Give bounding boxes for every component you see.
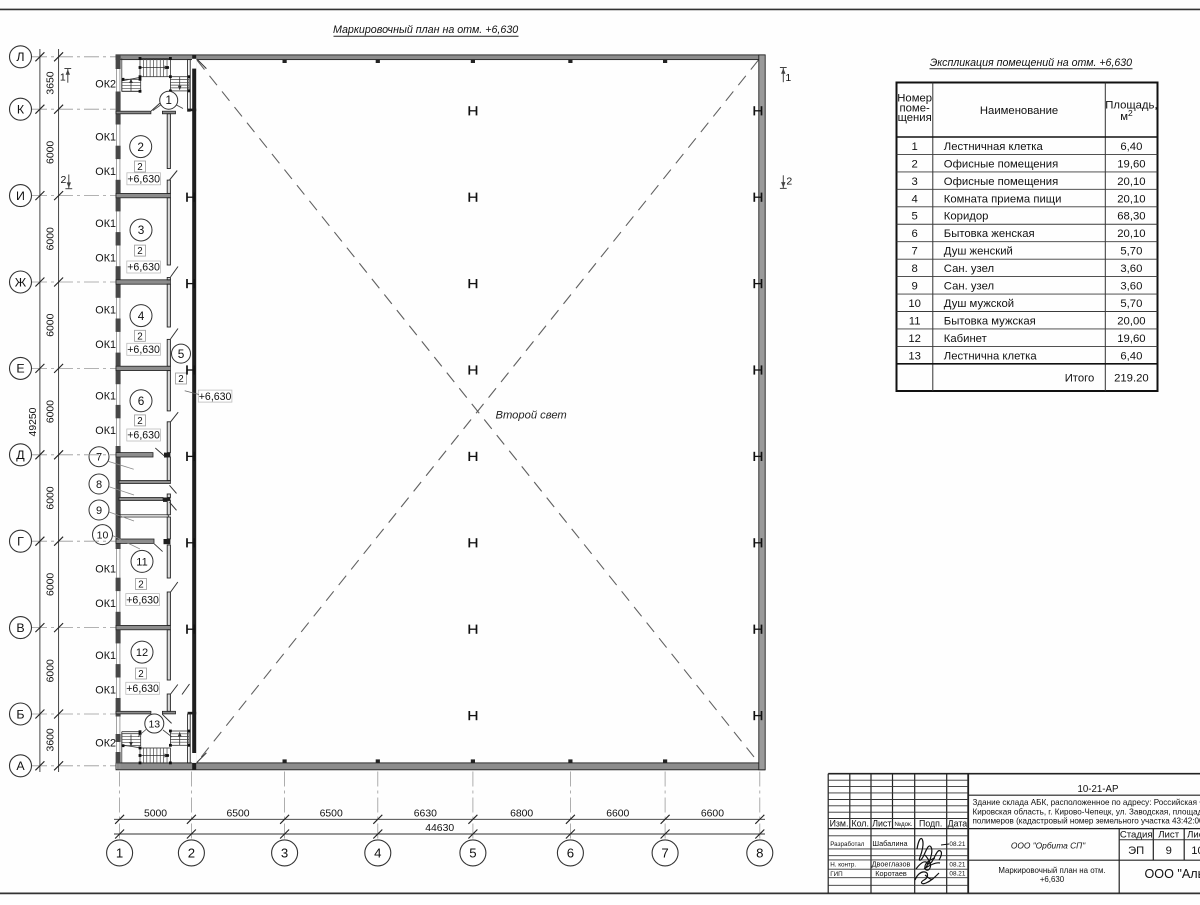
svg-text:3: 3 [281,846,288,861]
svg-text:3600: 3600 [45,728,56,751]
svg-text:2: 2 [138,580,143,591]
svg-text:7: 7 [912,246,918,258]
svg-text:08.21: 08.21 [949,871,965,878]
svg-text:Изм.: Изм. [830,818,849,828]
svg-text:Е: Е [16,362,24,376]
svg-text:+6,630: +6,630 [127,430,160,442]
svg-text:Душ женский: Душ женский [944,246,1013,258]
svg-text:6500: 6500 [320,808,343,819]
svg-text:Лист: Лист [872,818,891,828]
svg-text:6: 6 [567,846,574,861]
svg-text:+6,630: +6,630 [126,594,159,606]
svg-text:+6,630: +6,630 [127,174,160,186]
svg-text:5000: 5000 [144,808,167,819]
svg-text:ОК1: ОК1 [95,339,116,351]
svg-text:20,10: 20,10 [1117,193,1145,205]
svg-text:Кабинет: Кабинет [944,333,987,345]
svg-text:5: 5 [469,846,476,861]
svg-text:Экспликация помещений на отм.: Экспликация помещений на отм. +6,630 [930,57,1132,69]
svg-text:11: 11 [136,556,147,568]
svg-text:ОК2: ОК2 [95,78,116,90]
svg-text:08.21: 08.21 [949,841,965,848]
svg-text:6600: 6600 [701,808,724,819]
svg-text:Двоеглазов: Двоеглазов [872,860,911,869]
svg-text:08.21: 08.21 [949,861,965,868]
svg-text:ГИП: ГИП [830,871,843,878]
svg-text:12: 12 [908,333,921,345]
svg-text:44630: 44630 [425,823,454,834]
svg-text:+6,630: +6,630 [199,391,232,403]
svg-text:8: 8 [96,479,102,491]
svg-text:2: 2 [137,140,144,154]
svg-text:2: 2 [912,158,918,170]
svg-text:6500: 6500 [226,808,249,819]
svg-text:5,70: 5,70 [1120,246,1142,258]
svg-text:2: 2 [137,246,142,257]
svg-text:Д: Д [16,448,25,462]
svg-text:68,30: 68,30 [1117,211,1145,223]
svg-text:1: 1 [165,95,171,107]
svg-text:2: 2 [60,174,66,186]
svg-text:6000: 6000 [45,313,56,336]
svg-text:+6,630: +6,630 [127,262,160,274]
svg-text:2: 2 [137,162,142,173]
svg-text:Лестничная клетка: Лестничная клетка [944,141,1044,153]
svg-text:ОК1: ОК1 [95,684,116,696]
svg-text:11: 11 [909,315,921,327]
svg-text:4: 4 [138,309,145,323]
svg-text:6000: 6000 [45,141,56,164]
svg-text:К: К [17,103,25,117]
svg-text:2: 2 [786,175,792,187]
svg-text:В: В [16,621,24,635]
svg-text:6000: 6000 [45,400,56,423]
svg-text:Лист: Лист [1187,830,1200,841]
svg-text:Кол.: Кол. [851,818,868,828]
svg-text:6000: 6000 [45,227,56,250]
svg-text:10: 10 [1191,845,1200,857]
svg-text:13: 13 [148,719,160,731]
svg-text:Маркировочный план на отм.: Маркировочный план на отм. [998,866,1105,875]
svg-text:Б: Б [16,707,24,721]
svg-text:20,00: 20,00 [1117,315,1145,327]
svg-text:2: 2 [138,669,143,680]
svg-text:Шабалина: Шабалина [872,839,908,848]
svg-text:3: 3 [138,223,145,237]
svg-text:5: 5 [178,347,185,361]
svg-text:12: 12 [136,647,148,659]
svg-text:ОК1: ОК1 [95,598,116,610]
svg-text:ОК1: ОК1 [95,166,116,178]
svg-text:+6,630: +6,630 [126,683,159,695]
svg-text:ОК1: ОК1 [95,132,116,144]
svg-text:6: 6 [138,394,145,408]
svg-text:Сан. узел: Сан. узел [944,281,994,293]
svg-text:Подп.: Подп. [919,818,942,828]
svg-text:6,40: 6,40 [1120,350,1142,362]
svg-text:Второй свет: Второй свет [496,410,567,422]
svg-text:Бытовка мужская: Бытовка мужская [944,315,1036,327]
svg-text:20,10: 20,10 [1117,176,1145,188]
svg-text:И: И [16,189,25,203]
svg-text:ОК1: ОК1 [95,391,116,403]
svg-text:ЭП: ЭП [1128,845,1144,857]
svg-text:3,60: 3,60 [1120,263,1142,275]
svg-text:Стадия: Стадия [1120,830,1153,841]
svg-text:1: 1 [116,846,123,861]
svg-text:полимеров (кадастровый номер з: полимеров (кадастровый номер земельного … [973,817,1200,826]
svg-text:Л: Л [16,50,24,64]
svg-text:10: 10 [97,529,109,541]
svg-text:Коридор: Коридор [944,211,989,223]
svg-text:ОК1: ОК1 [95,252,116,264]
svg-text:А: А [16,759,25,773]
svg-text:19,60: 19,60 [1117,158,1145,170]
svg-text:6000: 6000 [45,659,56,682]
svg-text:2: 2 [137,331,142,342]
svg-text:2: 2 [188,846,195,861]
svg-text:6: 6 [912,228,918,240]
svg-text:Коротаев: Коротаев [875,869,907,878]
svg-text:7: 7 [96,452,102,464]
svg-text:+6,630: +6,630 [127,344,160,356]
svg-text:Н. контр.: Н. контр. [830,861,856,868]
svg-text:9: 9 [912,281,918,293]
svg-text:Разработал: Разработал [830,840,865,848]
svg-text:ООО "Альянс-Проект": ООО "Альянс-Проект" [1145,867,1200,881]
svg-text:6630: 6630 [414,808,437,819]
svg-text:щения: щения [898,112,932,124]
svg-text:3: 3 [912,176,918,188]
svg-text:ОК1: ОК1 [95,564,116,576]
svg-text:2: 2 [137,416,142,427]
svg-text:Офисные помещения: Офисные помещения [944,158,1058,170]
svg-text:5: 5 [912,211,918,223]
svg-text:1: 1 [60,72,66,84]
svg-text:9: 9 [96,505,102,517]
svg-text:Кировская область, г. Кирово-Ч: Кировская область, г. Кирово-Чепецк, ул.… [973,807,1200,816]
svg-text:6600: 6600 [606,808,629,819]
svg-text:Ж: Ж [15,275,27,289]
svg-text:№док.: №док. [894,821,912,828]
svg-text:ОК1: ОК1 [95,304,116,316]
svg-text:1: 1 [785,72,791,84]
svg-text:1: 1 [912,141,918,153]
svg-text:19,60: 19,60 [1117,333,1145,345]
svg-text:Душ мужской: Душ мужской [944,298,1014,310]
svg-text:ОК1: ОК1 [95,218,116,230]
svg-text:3,60: 3,60 [1120,281,1142,293]
svg-text:Лестнична клетка: Лестнична клетка [944,350,1038,362]
svg-text:6800: 6800 [510,808,533,819]
svg-text:5,70: 5,70 [1120,298,1142,310]
svg-text:Здание склада АБК, расположенн: Здание склада АБК, расположенное по адре… [973,798,1200,807]
svg-text:4: 4 [912,193,918,205]
svg-text:6000: 6000 [45,573,56,596]
svg-text:10-21-АР: 10-21-АР [1078,784,1119,795]
svg-text:4: 4 [374,846,381,861]
svg-text:Маркировочный план на отм. +6,: Маркировочный план на отм. +6,630 [333,24,518,36]
svg-text:Сан. узел: Сан. узел [944,263,994,275]
svg-text:8: 8 [912,263,918,275]
svg-text:Бытовка женская: Бытовка женская [944,228,1035,240]
svg-text:6,40: 6,40 [1120,141,1142,153]
svg-text:Наименование: Наименование [980,105,1058,117]
svg-text:Офисные помещения: Офисные помещения [944,176,1058,188]
svg-text:9: 9 [1166,845,1172,857]
svg-text:219.20: 219.20 [1114,373,1149,385]
svg-text:Итого: Итого [1065,373,1095,385]
svg-text:2: 2 [178,374,183,385]
svg-text:Г: Г [17,535,24,549]
svg-text:Комната приема пищи: Комната приема пищи [944,193,1062,205]
svg-text:6000: 6000 [45,486,56,509]
svg-text:ОК1: ОК1 [95,425,116,437]
svg-text:20,10: 20,10 [1117,228,1145,240]
svg-text:ОК2: ОК2 [95,737,116,749]
svg-text:7: 7 [661,846,668,861]
svg-text:Дата: Дата [948,818,968,828]
svg-text:3650: 3650 [45,71,56,94]
svg-text:+6,630: +6,630 [1040,875,1065,884]
svg-text:Лист: Лист [1158,830,1179,841]
svg-text:8: 8 [756,846,763,861]
svg-text:ООО "Орбита СП": ООО "Орбита СП" [1011,840,1086,850]
svg-text:49250: 49250 [28,407,39,436]
svg-text:ОК1: ОК1 [95,650,116,662]
svg-text:13: 13 [908,350,921,362]
svg-text:10: 10 [908,298,921,310]
